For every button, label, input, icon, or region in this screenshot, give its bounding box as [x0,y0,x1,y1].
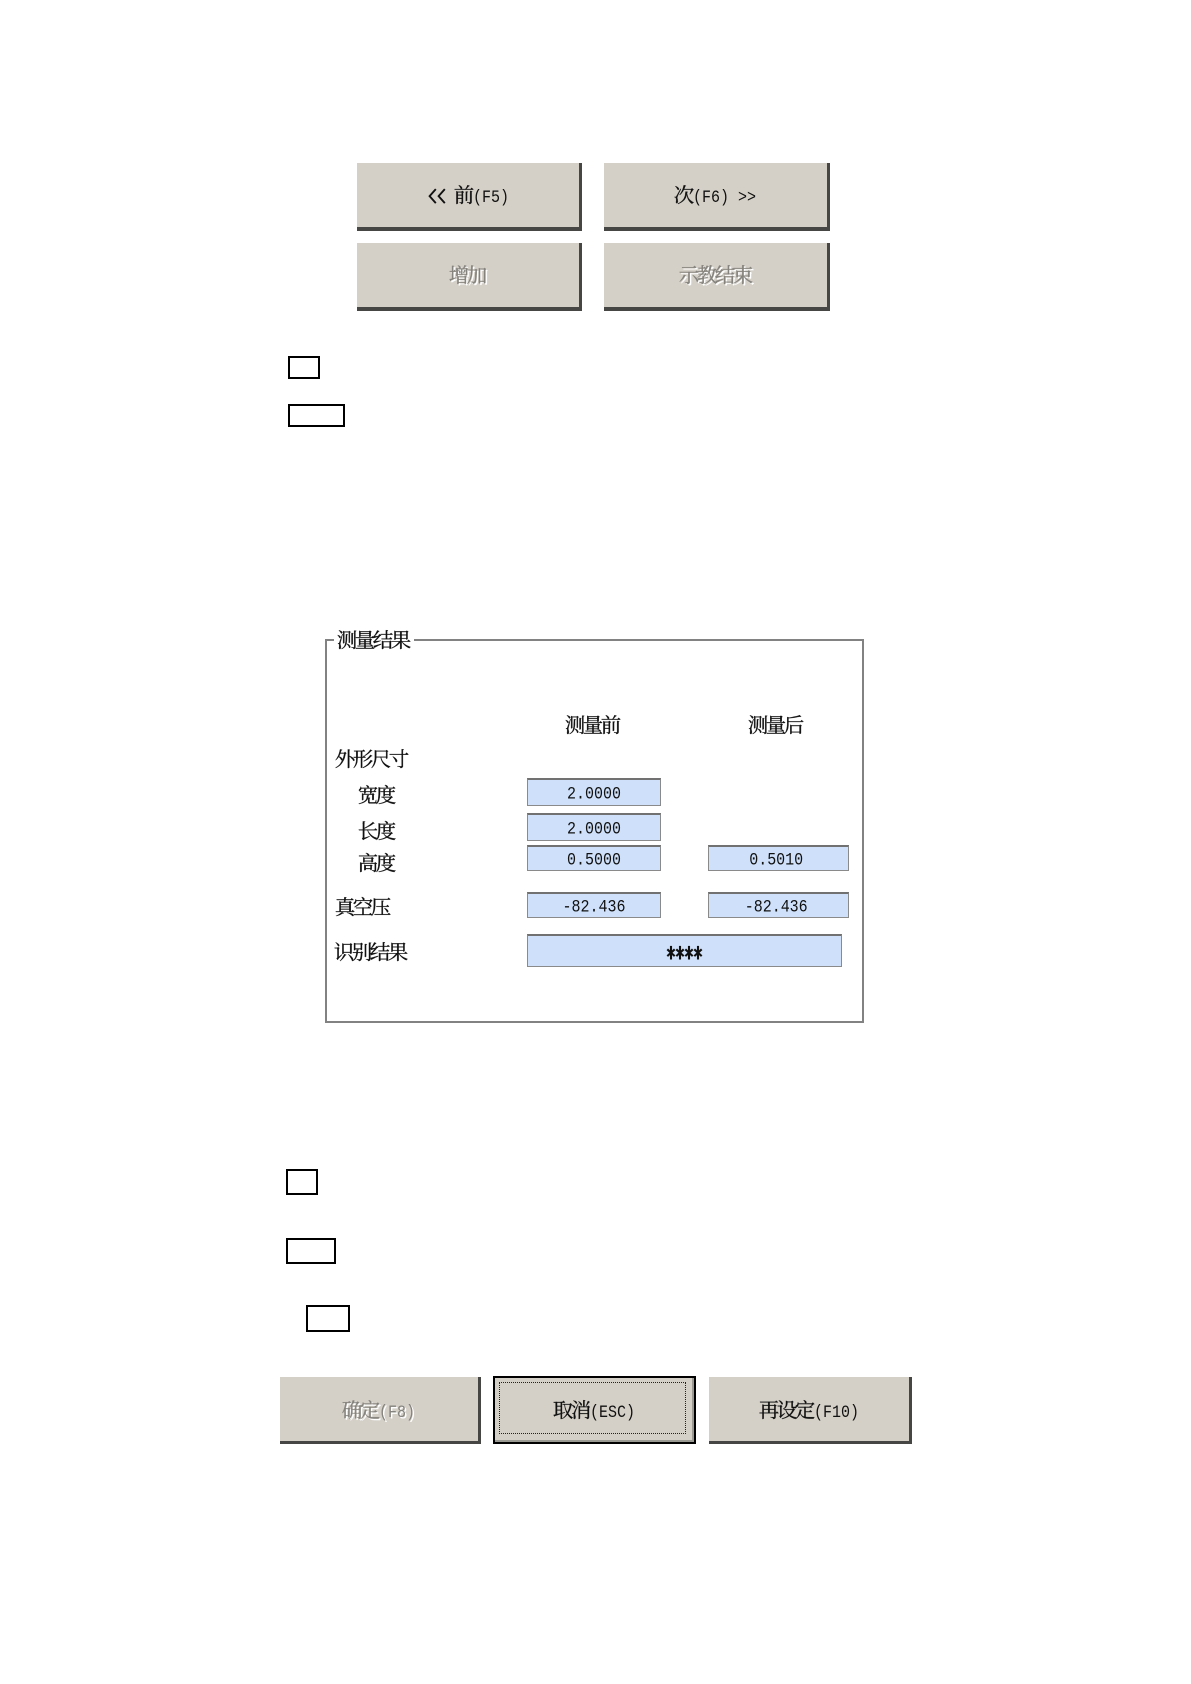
svg-text:(ESC): (ESC) [590,1403,635,1423]
svg-text:(F8): (F8) [379,1403,415,1423]
svg-text:(F10): (F10) [814,1403,859,1423]
